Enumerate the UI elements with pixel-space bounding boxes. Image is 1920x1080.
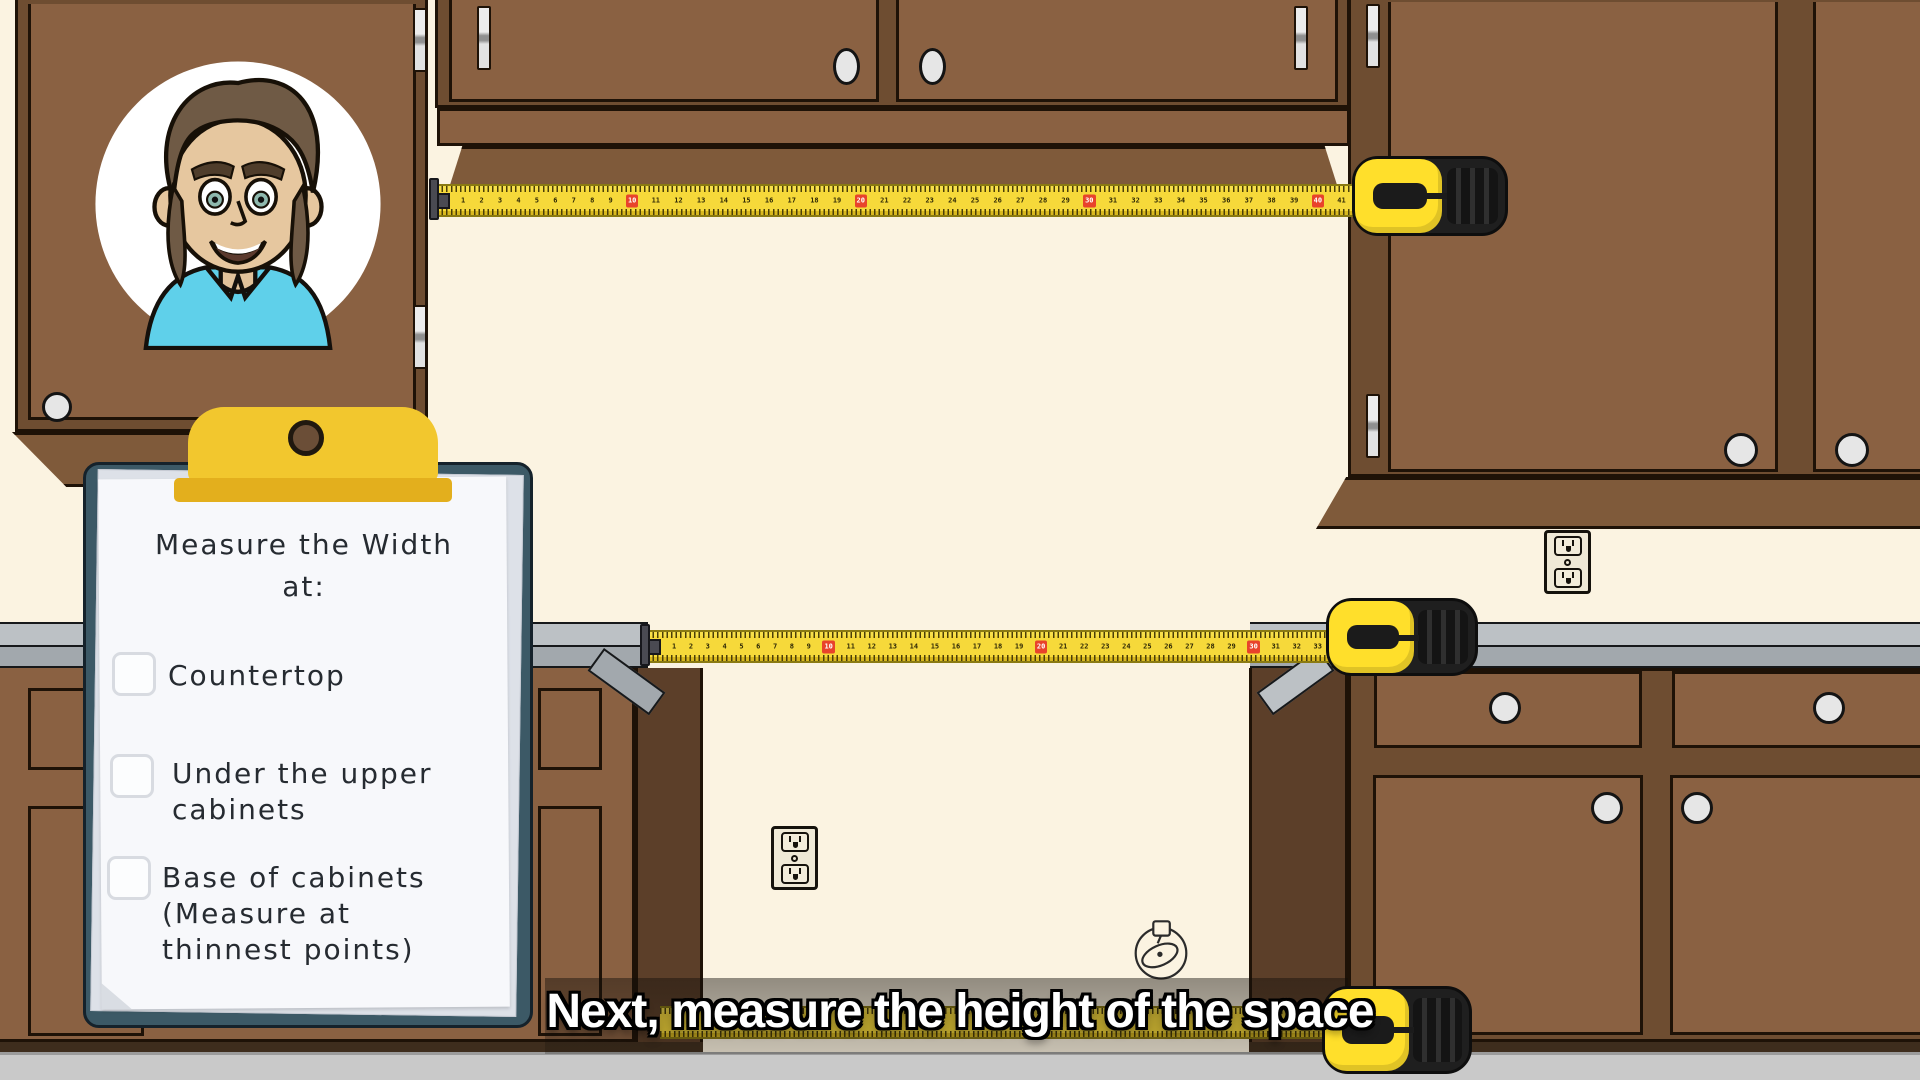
checklist-item-label: Countertop — [168, 658, 508, 694]
cabinet-trim — [437, 108, 1350, 146]
checklist-item-label: Under the upper cabinets — [172, 756, 512, 828]
tape-case-lock — [1347, 625, 1400, 649]
presenter-avatar — [94, 58, 382, 350]
drawer-knob — [1489, 692, 1521, 724]
door-knob — [919, 48, 946, 85]
door-knob — [1724, 433, 1758, 467]
outlet-screw — [1564, 559, 1571, 566]
outlet-socket — [1554, 568, 1582, 588]
tape-numbers: 1234567891011121314151617181920212223242… — [672, 643, 1322, 650]
hinge-icon — [1294, 6, 1308, 70]
cabinet-trim — [1316, 477, 1920, 529]
tape-case-grip — [1418, 610, 1468, 664]
power-outlet-icon — [771, 826, 818, 890]
drawer-front — [538, 688, 602, 770]
drawer-knob — [1813, 692, 1845, 724]
tape-hook — [429, 178, 439, 220]
checkbox-unchecked — [112, 652, 156, 696]
tape-blade-upper: 1234567891011121314151617181920212223242… — [437, 184, 1354, 217]
cabinet-door — [896, 0, 1338, 102]
upper-right-cabinet — [1348, 0, 1920, 477]
outlet-socket — [781, 832, 809, 852]
hinge-icon — [1366, 4, 1380, 68]
door-knob — [1681, 792, 1713, 824]
tape-hook — [640, 624, 650, 666]
door-knob — [833, 48, 860, 85]
clipboard-clip-base — [174, 478, 452, 502]
hinge-icon — [1366, 394, 1380, 458]
hinge-icon — [477, 6, 491, 70]
door-knob — [1591, 792, 1623, 824]
tape-case-upper — [1352, 156, 1508, 236]
tape-numbers: 1234567891011121314151617181920212223242… — [461, 197, 1346, 204]
door-knob — [42, 392, 72, 422]
hinge-icon — [413, 8, 427, 72]
clipboard-clip-hole — [288, 420, 324, 456]
kitchen-scene: 1234567891011121314151617181920212223242… — [0, 0, 1920, 1080]
power-outlet-icon — [1544, 530, 1591, 594]
tape-case-lock — [1373, 183, 1427, 208]
checkbox-unchecked — [110, 754, 154, 798]
tape-ticks — [437, 209, 1354, 215]
floor — [0, 1052, 1920, 1080]
cabinet-door — [449, 0, 879, 102]
outlet-screw — [791, 855, 798, 862]
tape-measure-outline-icon — [1128, 918, 1194, 984]
checklist-title: Measure the Width at: — [100, 524, 508, 608]
outlet-socket — [1554, 536, 1582, 556]
hinge-icon — [413, 305, 427, 369]
subtitle-caption: Next, measure the height of the space — [0, 984, 1920, 1039]
checkbox-unchecked — [107, 856, 151, 900]
door-knob — [1835, 433, 1869, 467]
outlet-socket — [781, 864, 809, 884]
cabinet-door — [1813, 2, 1920, 472]
upper-center-cabinet — [435, 0, 1350, 108]
tape-ticks — [648, 632, 1330, 638]
tape-ticks — [648, 655, 1330, 661]
cabinet-crown — [449, 146, 1338, 188]
checklist-item-label: Base of cabinets (Measure at thinnest po… — [162, 860, 522, 968]
tape-case-grip — [1447, 168, 1498, 224]
drawer-front — [1672, 671, 1920, 748]
tape-ticks — [437, 186, 1354, 192]
tape-case-middle — [1326, 598, 1478, 676]
cabinet-door — [1388, 2, 1778, 472]
tape-blade-middle: 1234567891011121314151617181920212223242… — [648, 630, 1330, 663]
